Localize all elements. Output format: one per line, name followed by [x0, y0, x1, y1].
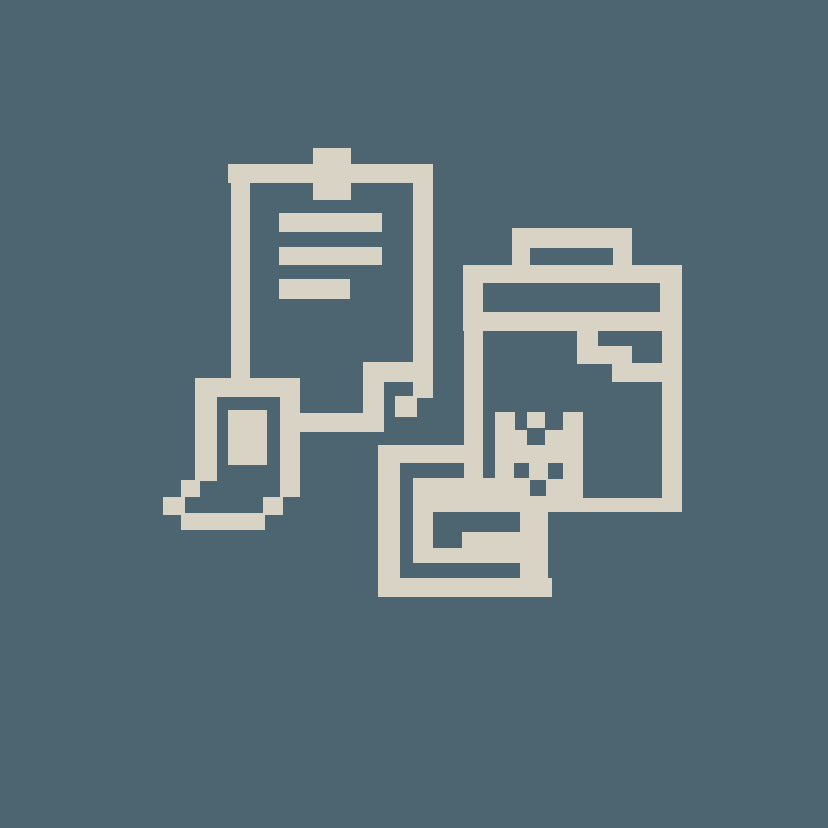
- small-document-right-bar: [280, 397, 300, 497]
- clipboard-back-notch-bar: [612, 363, 682, 382]
- castle-center-hole: [530, 480, 546, 496]
- spiral-fragment-inner-arm: [433, 548, 462, 563]
- clipboard-back-header-bottom: [463, 312, 682, 331]
- clipboard-front-text-line-1: [279, 213, 382, 232]
- clipboard-front-right-bar: [413, 164, 433, 398]
- castle-fragment-base-row-1: [495, 445, 583, 463]
- small-document-left-bar: [195, 378, 217, 481]
- spiral-fragment-ring-left-bar: [413, 478, 433, 563]
- clipboard-back-header-left: [463, 283, 483, 312]
- clipboard-front-top-bar: [228, 164, 433, 183]
- castle-fragment-base-row-2-left: [495, 463, 514, 479]
- spiral-fragment-outer-top-bar: [378, 445, 480, 463]
- clipboard-front-fold-corner: [395, 396, 417, 417]
- castle-fragment-mid-top-block: [527, 412, 545, 428]
- clipboard-front-fold-step-h: [363, 362, 413, 382]
- clipboard-back-handle-right: [613, 228, 632, 266]
- small-document-step-square-1: [181, 480, 200, 497]
- small-document-bottom-bar: [181, 513, 265, 530]
- castle-fragment-mid-right-block: [545, 430, 563, 445]
- small-document-inner-block: [228, 410, 267, 465]
- spiral-fragment-inner-block: [462, 532, 520, 563]
- clipboard-back-header-right: [660, 283, 682, 312]
- castle-fragment-left-tower: [495, 412, 515, 445]
- clipboard-front-text-line-3: [279, 279, 350, 299]
- clipboard-back-header-top: [463, 265, 682, 283]
- clipboard-back-right-bar: [662, 331, 682, 512]
- spiral-fragment-outer-left-bar: [378, 445, 400, 597]
- castle-fragment-mid-left-block: [515, 430, 527, 445]
- castle-fragment-right-tower: [563, 412, 583, 445]
- clipboard-front-left-bar: [231, 164, 250, 383]
- clipboard-back-notch-step: [597, 346, 632, 364]
- clipboard-back-handle-left: [512, 228, 530, 266]
- pixelated-clipboards-icon: [0, 0, 828, 828]
- castle-fragment-base-row-2-mid: [529, 463, 548, 479]
- castle-fragment-base-row-2-right: [563, 463, 583, 479]
- clipboard-front-text-line-2: [279, 247, 382, 265]
- clipboard-back-notch-column: [577, 331, 598, 364]
- small-document-step-square-3: [263, 497, 283, 515]
